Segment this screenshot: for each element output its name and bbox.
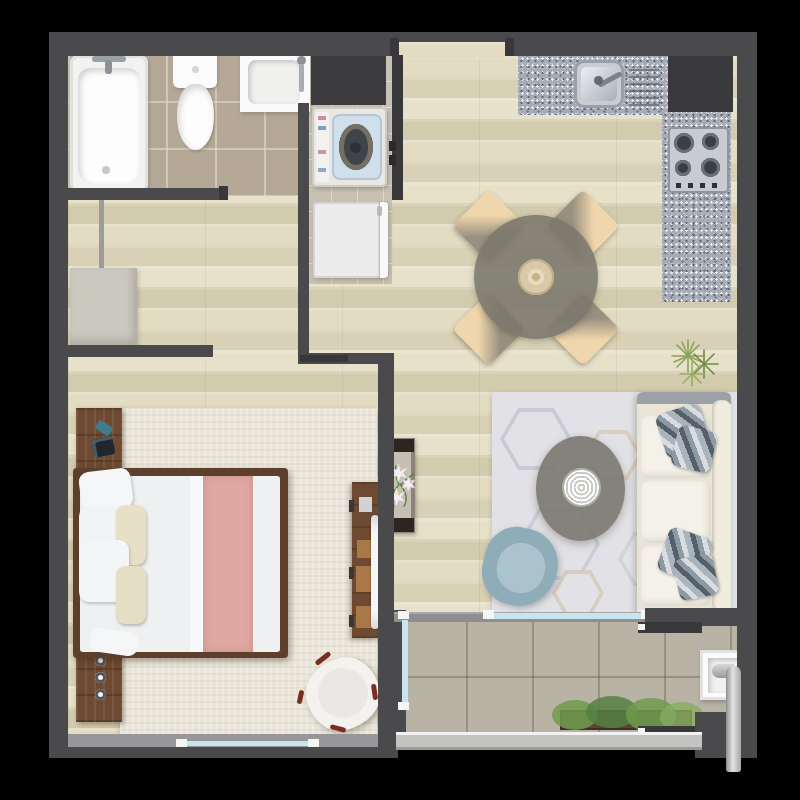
cooktop-knobs <box>676 183 720 188</box>
washer-sticker <box>318 150 326 154</box>
wall-dressing-south <box>68 345 213 357</box>
plant-icon <box>666 334 724 392</box>
entrance-jamb <box>390 38 399 56</box>
bed-runner-pink <box>203 476 253 652</box>
toilet-bowl <box>177 84 214 150</box>
laundry-upper-cabinet <box>311 55 386 105</box>
dining-centerpiece <box>518 259 554 295</box>
burner-icon <box>701 158 720 177</box>
floor-plan-canvas <box>0 0 800 800</box>
accent-chair-seat <box>318 668 368 718</box>
closet-door-handle <box>389 141 396 151</box>
burner-icon <box>702 133 719 150</box>
bed-pillow-cream <box>116 566 146 624</box>
wall-right <box>737 32 757 758</box>
console-device <box>359 497 372 512</box>
bedroom-window-glass <box>183 741 313 746</box>
washer-drum-center <box>350 142 361 153</box>
burner-icon <box>675 160 691 176</box>
kitchen-corner-cabinet <box>668 52 733 112</box>
panel-knob <box>95 689 106 700</box>
entrance-jamb <box>505 38 514 56</box>
balcony-side-glass <box>402 620 408 706</box>
wall-divider-upper <box>378 353 394 614</box>
sofa-pillow <box>672 552 720 601</box>
washer-sticker <box>318 116 326 120</box>
panel-knob <box>95 672 106 683</box>
burner-icon <box>674 133 694 153</box>
tub-drain <box>102 166 110 174</box>
console-handle <box>349 615 354 627</box>
entrance-recess-floor <box>398 42 506 56</box>
console-drawer <box>356 606 372 628</box>
service-door-track <box>638 622 702 633</box>
bathroom-door-jamb <box>219 186 228 200</box>
balcony-sliding-glass <box>490 613 648 619</box>
coffee-table-tray <box>564 470 599 505</box>
drain-pipe-vertical <box>726 666 741 772</box>
tub-spout-icon <box>105 60 112 74</box>
washer-sticker <box>318 126 326 130</box>
console-handle <box>349 567 354 579</box>
service-track-end <box>638 624 645 630</box>
dresser <box>70 268 137 345</box>
side-glass-cap <box>398 611 409 619</box>
balcony-glass-railing <box>396 732 702 750</box>
refrigerator-handle <box>377 206 382 216</box>
side-glass-cap <box>398 702 409 710</box>
wall-left <box>49 32 68 758</box>
washer-sticker <box>318 168 326 172</box>
vanity-basin <box>248 60 300 104</box>
closet-door-handle <box>389 155 396 165</box>
sliding-door-handle <box>483 610 494 619</box>
wall-bathroom-south <box>68 188 219 200</box>
laundry-closet-door <box>392 55 403 200</box>
kitchen-drainboard <box>629 66 659 106</box>
console-handle <box>349 500 354 512</box>
closet-rail <box>99 196 104 274</box>
window-handle <box>176 739 187 747</box>
wall-stub-center <box>298 103 309 364</box>
window-handle <box>308 739 319 747</box>
toilet-flush-button <box>192 66 199 73</box>
bedroom-door-leaf <box>300 355 348 362</box>
kitchen-faucet-base <box>594 76 603 85</box>
vanity-faucet-lever <box>299 64 304 92</box>
